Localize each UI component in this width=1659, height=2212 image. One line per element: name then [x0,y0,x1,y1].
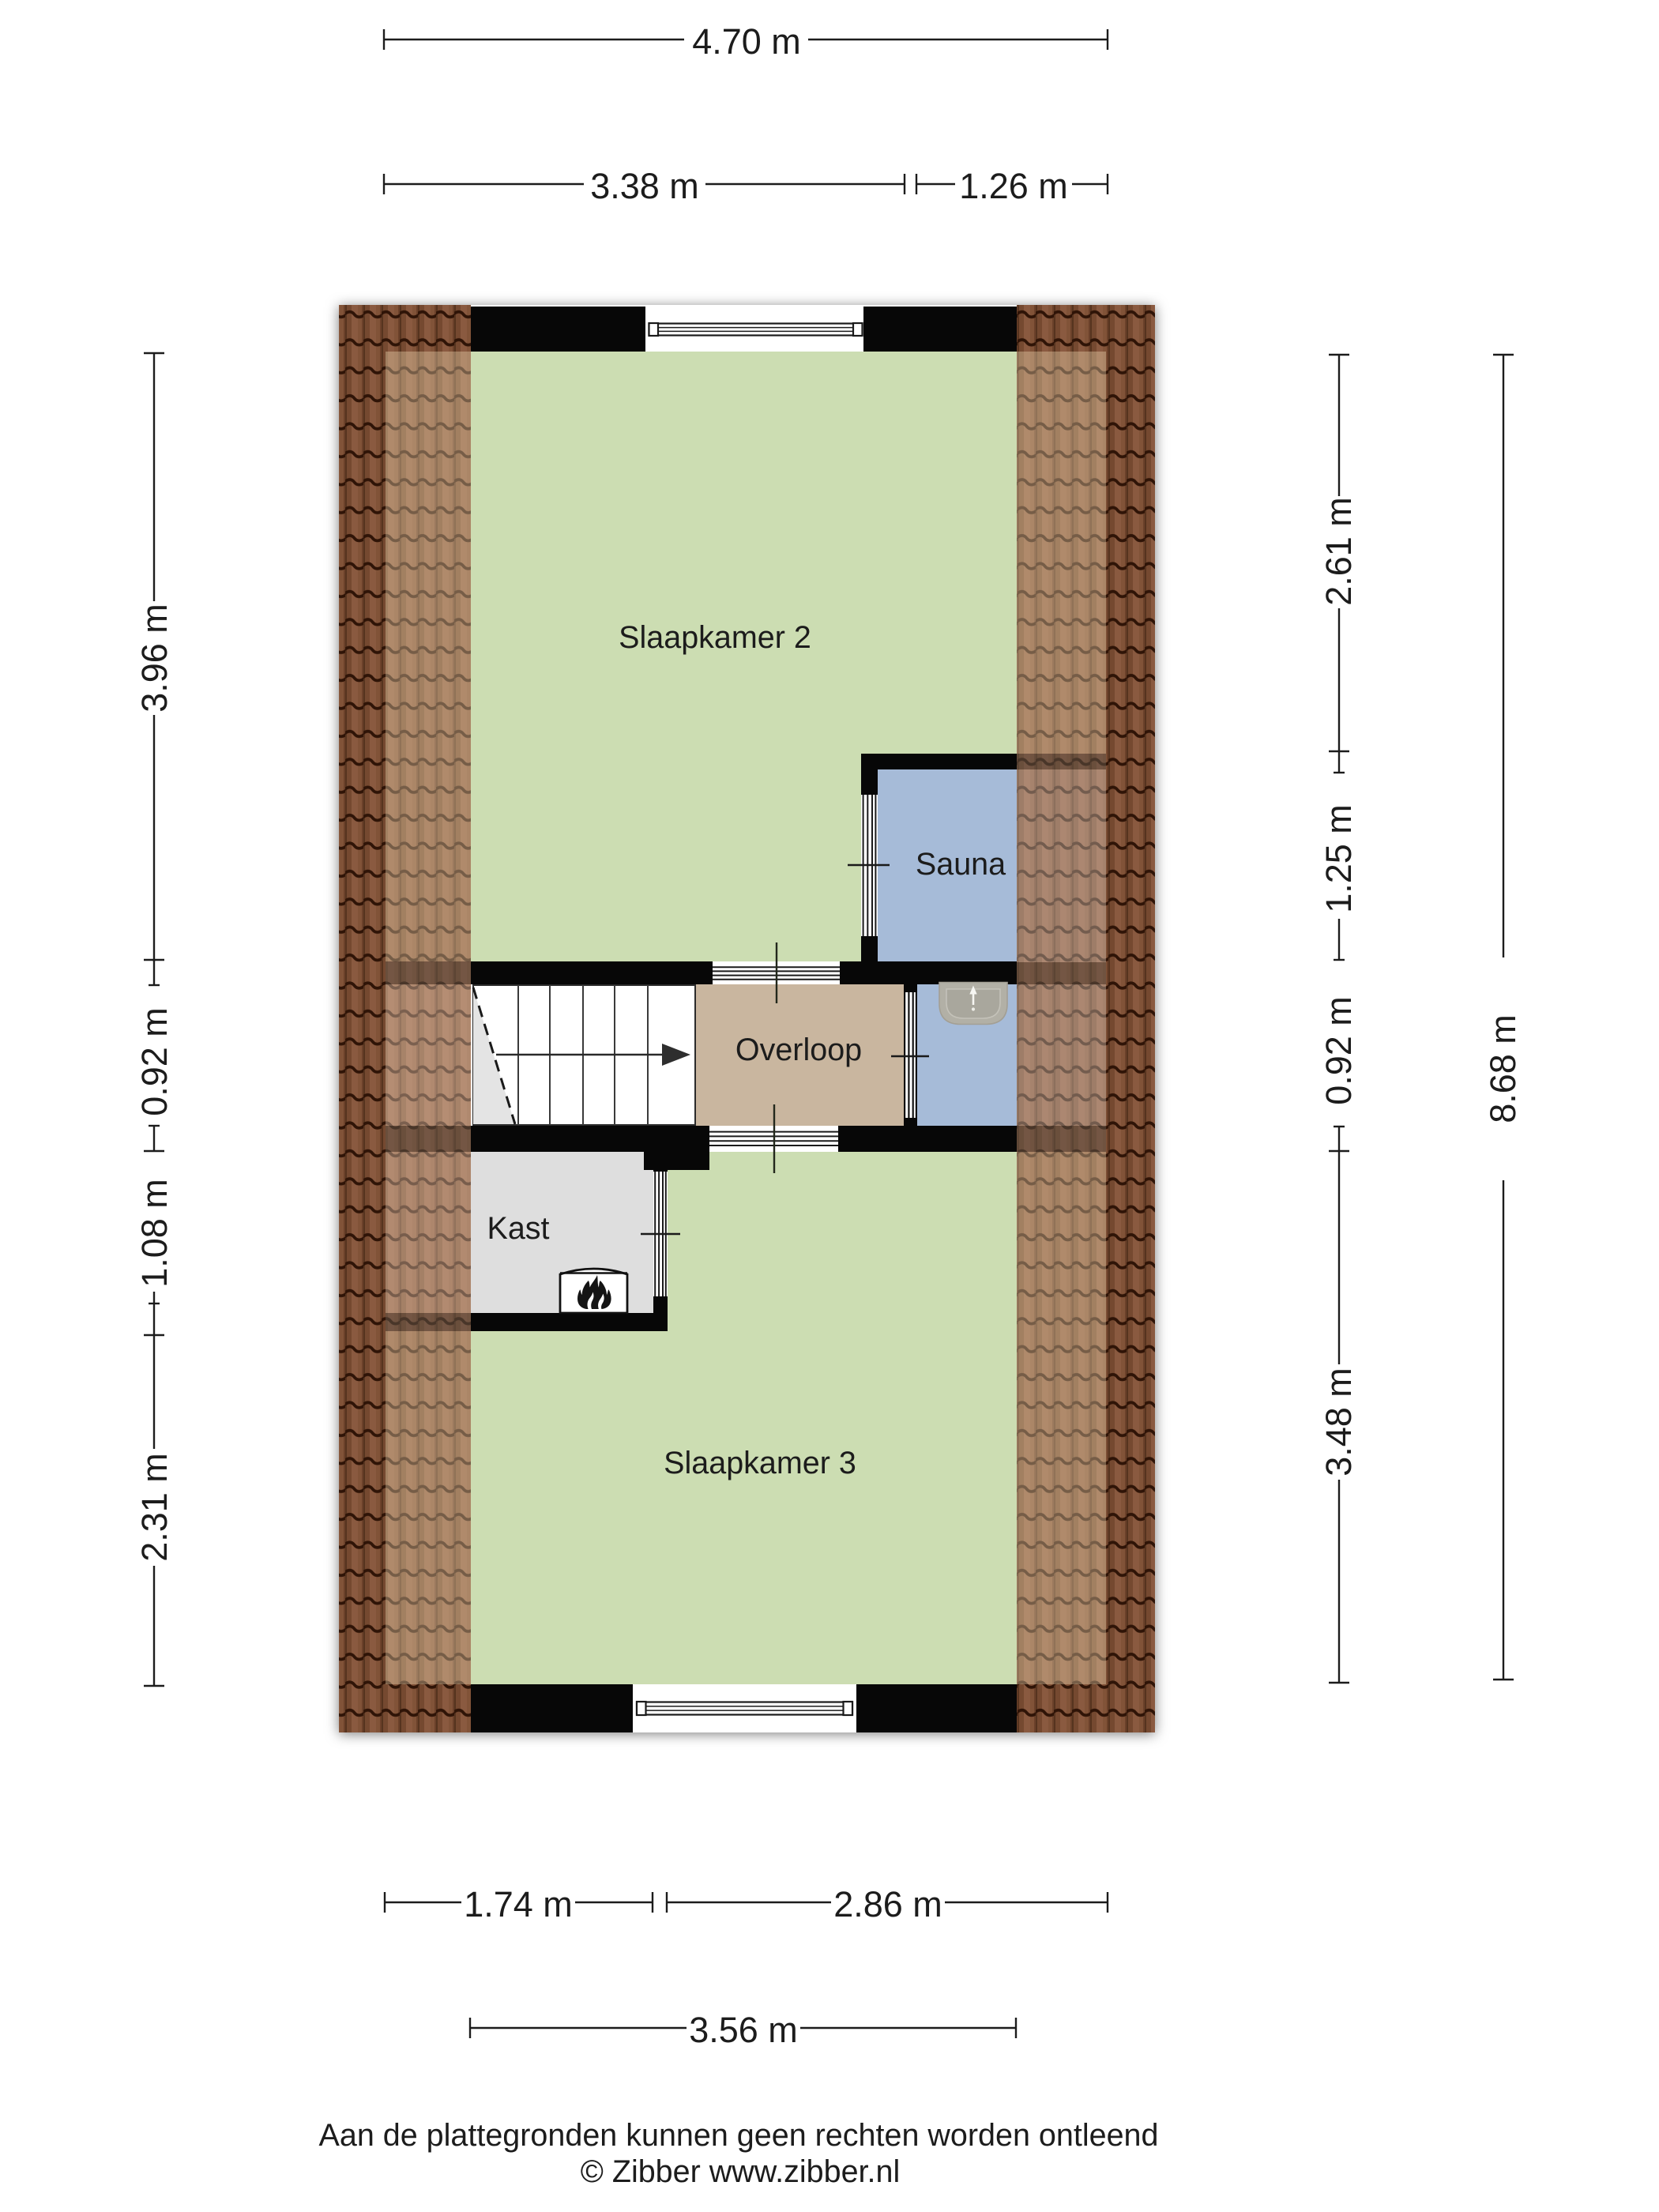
svg-text:3.48 m: 3.48 m [1319,1367,1359,1477]
svg-text:Sauna: Sauna [916,847,1006,882]
svg-text:1.74 m: 1.74 m [464,1884,573,1924]
svg-text:1.08 m: 1.08 m [134,1179,175,1288]
svg-text:1.26 m: 1.26 m [959,166,1068,206]
svg-text:3.56 m: 3.56 m [689,2010,798,2050]
svg-text:0.92 m: 0.92 m [134,1007,175,1116]
svg-text:3.38 m: 3.38 m [590,166,699,206]
svg-text:2.31 m: 2.31 m [134,1453,175,1562]
svg-text:Overloop: Overloop [735,1033,862,1067]
svg-text:Slaapkamer 2: Slaapkamer 2 [619,620,811,655]
svg-text:0.92 m: 0.92 m [1319,996,1359,1105]
svg-text:3.96 m: 3.96 m [134,604,175,713]
svg-text:Aan de plattegronden kunnen ge: Aan de plattegronden kunnen geen rechten… [319,2118,1159,2153]
svg-text:1.25 m: 1.25 m [1319,804,1359,913]
svg-text:2.61 m: 2.61 m [1319,497,1359,606]
svg-text:© Zibber www.zibber.nl: © Zibber www.zibber.nl [581,2154,901,2189]
svg-text:Slaapkamer 3: Slaapkamer 3 [664,1446,856,1480]
svg-text:4.70 m: 4.70 m [692,21,801,62]
svg-text:Kast: Kast [487,1211,549,1246]
svg-text:8.68 m: 8.68 m [1483,1014,1523,1123]
svg-text:2.86 m: 2.86 m [833,1884,942,1924]
